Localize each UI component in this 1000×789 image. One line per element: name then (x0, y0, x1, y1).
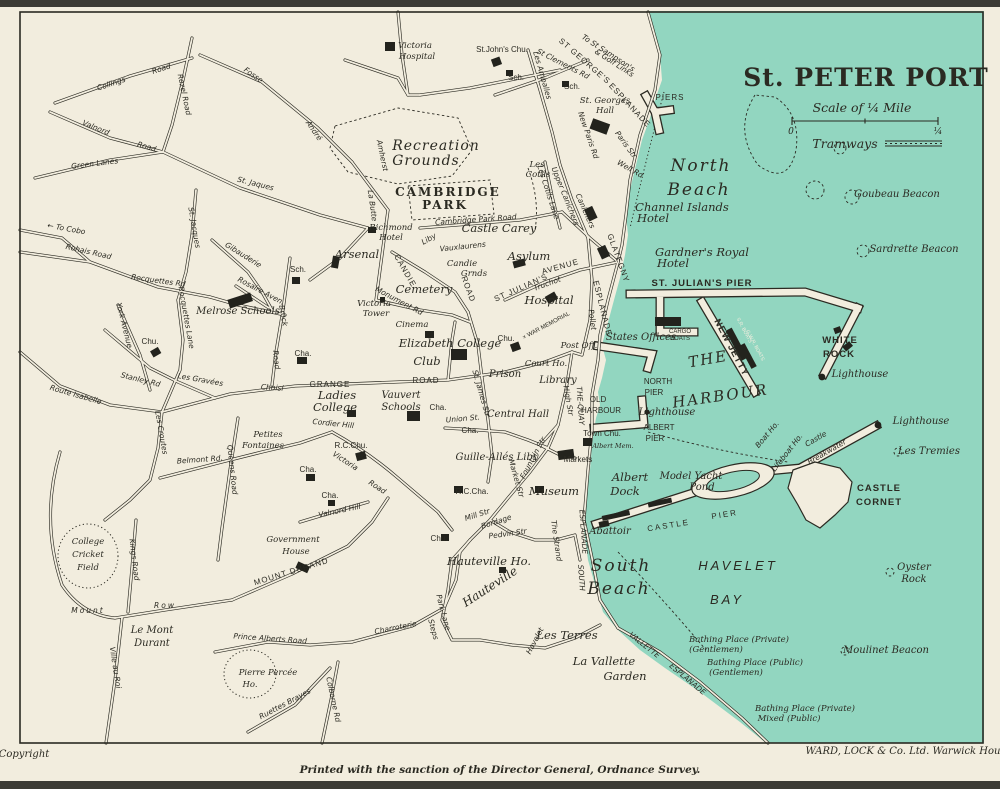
label-library: Library (538, 375, 577, 386)
label-town-chu: Town Chu. (583, 429, 621, 438)
label-piers: PIERS (655, 93, 684, 102)
label-bay: BAY (710, 592, 744, 607)
label-grnds: Grnds (461, 269, 488, 279)
label-castle-carey: Castle Carey (462, 221, 537, 235)
label-st-georges: St. Georges (580, 96, 631, 106)
label-hospital: Hospital (398, 52, 436, 62)
label-pierre-perc-e: Pierre Percée (238, 667, 298, 678)
label-cha: Cha. (322, 491, 339, 500)
label-st-john-s-chu: St.John's Chu. (476, 45, 528, 54)
label-north: NORTH (644, 377, 673, 386)
label-la-vallette: La Vallette (572, 654, 636, 668)
label-central-hall: Central Hall (487, 409, 549, 420)
label-states-offices: States Offices (606, 332, 676, 343)
scale-start: 0 (788, 127, 794, 137)
label-lighthouse: Lighthouse (892, 416, 950, 427)
label-dock: Dock (609, 484, 640, 498)
label-havelet: HAVELET (698, 558, 778, 573)
photo-edge-top (0, 0, 1000, 7)
label-road: ROAD (412, 376, 439, 385)
label-hauteville-ho: Hauteville Ho. (446, 554, 531, 568)
label-rock: Rock (900, 574, 926, 585)
label-lighthouse: Lighthouse (831, 369, 889, 380)
label-bathing-place-private: Bathing Place (Private) (688, 634, 789, 645)
map-title: St. PETER PORT (743, 63, 989, 92)
label-petites: Petites (252, 430, 283, 440)
label-sch: Sch. (508, 73, 524, 82)
label-gentlemen: (Gentlemen) (709, 667, 763, 678)
label-chu: Chu. (431, 534, 448, 543)
label-sardrette-beacon: Sardrette Beacon (869, 244, 958, 255)
label-cinema: Cinema (396, 320, 429, 330)
label-bathing-place-public: Bathing Place (Public) (706, 657, 803, 668)
label-prison: Prison (488, 369, 521, 380)
label-chu: Chu. (498, 334, 515, 343)
label-ho: Ho. (241, 680, 257, 690)
label-beach: Beach (586, 579, 650, 599)
label-hotel: Hotel (656, 256, 689, 270)
label-albert: Albert (611, 470, 649, 484)
label-row: Row (154, 601, 176, 610)
photo-edge-bottom (0, 781, 1000, 789)
tramways-label: Tramways (812, 136, 877, 151)
label-hotel: Hotel (636, 211, 669, 225)
label-le-mont: Le Mont (130, 625, 174, 636)
label-rock: ROCK (823, 349, 855, 360)
label-r-c-cha: R.C.Cha. (456, 487, 489, 496)
label-hall: Hall (595, 106, 614, 116)
label-mixed-public: Mixed (Public) (757, 713, 821, 724)
label-white: WHITE (822, 335, 858, 346)
label-fontaines: Fontaines (241, 441, 285, 451)
white-rock-lighthouse-dot (819, 374, 826, 381)
scale-label: Scale of ¼ Mile (813, 100, 912, 115)
label-pier: PIER (646, 434, 665, 443)
label-choisi: Choisi (261, 382, 285, 393)
label-albert: ALBERT (644, 423, 675, 432)
label-bathing-place-private: Bathing Place (Private) (754, 703, 855, 714)
st-peter-port-map: CollingsRoadValnordRoadRozel RoadFosseAn… (0, 0, 1000, 789)
label-vauvert: Vauvert (381, 390, 421, 401)
label-tower: Tower (363, 309, 390, 319)
label-elizabeth-college: Elizabeth College (398, 336, 502, 350)
label-durant: Durant (133, 638, 171, 649)
label-cha: Cha. (300, 465, 317, 474)
label-les-terres: Les Terres (535, 628, 597, 642)
label-albert-mem: Albert Mem. (591, 442, 633, 450)
label-r-c-chu: R.C.Chu. (335, 441, 368, 450)
label-boats: BOATS (670, 336, 690, 342)
label-oyster: Oyster (897, 562, 932, 573)
label-museum: Museum (528, 484, 579, 498)
label-schools: Schools (381, 402, 420, 413)
label-old: OLD (590, 395, 607, 404)
label-asylum: Asylum (507, 249, 551, 263)
label-cha: Cha. (295, 349, 312, 358)
label-moulinet-beacon: Moulinet Beacon (842, 645, 929, 656)
label-sch: Sch. (564, 82, 580, 91)
label-arsenal: Arsenal (334, 247, 380, 261)
label-hotel: Hotel (378, 233, 403, 243)
label-abattoir: Abattoir (588, 526, 632, 537)
label-cemetery: Cemetery (396, 282, 453, 296)
ordnance-survey-note: Printed with the sanction of the Directo… (299, 764, 701, 776)
label-victoria: Victoria (398, 41, 432, 51)
label-harbour: HARBOUR (581, 406, 621, 415)
label-pier: PIER (645, 388, 664, 397)
label-recreation: Recreation (391, 138, 480, 154)
label-college: College (313, 400, 357, 414)
label-model-yacht: Model Yacht (659, 471, 724, 482)
label-cha: Cha. (430, 403, 447, 412)
label-college: College (72, 537, 105, 547)
label-cha: Cha. (462, 426, 479, 435)
label-cornet: CORNET (856, 497, 902, 508)
label-north: North (669, 156, 731, 176)
label-grounds: Grounds (392, 153, 459, 169)
label-garden: Garden (603, 669, 646, 683)
breakwater-lighthouse-dot (875, 422, 882, 429)
label-richmond: Richmond (368, 223, 413, 233)
label-chu: Chu. (142, 337, 159, 346)
label-gentlemen: (Gentlemen) (689, 644, 743, 655)
scale-end: ¼ (934, 126, 943, 137)
label-castle: CASTLE (857, 483, 901, 494)
label-park: PARK (422, 198, 468, 212)
label-cricket: Cricket (72, 550, 104, 560)
label-court-ho: Court Ho. (525, 359, 567, 369)
label-victoria: Victoria (357, 299, 391, 309)
label-beach: Beach (666, 180, 730, 200)
vintage-map-page: CollingsRoadValnordRoadRozel RoadFosseAn… (0, 0, 1000, 789)
label-south: SOUTH (576, 564, 587, 591)
label-mount: Mount (71, 606, 105, 615)
label-cargo: CARGO (669, 329, 691, 335)
label-candie: Candie (447, 259, 477, 269)
label-house: House (281, 547, 309, 557)
label-field: Field (76, 563, 99, 573)
label-south: South (591, 556, 652, 576)
publisher-imprint: WARD, LOCK & Co. Ltd. Warwick House, Sal… (806, 746, 1000, 757)
label-cambridge: CAMBRIDGE (395, 185, 501, 199)
label-post-off: Post Off. (560, 341, 598, 351)
label-hospital: Hospital (523, 293, 573, 307)
label-les-tremies: Les Tremies (897, 446, 960, 457)
label-government: Government (266, 535, 320, 545)
label-melrose-schools: Melrose Schools (195, 306, 280, 317)
label-markets: Markets (564, 455, 592, 464)
label-goubeau-beacon: Goubeau Beacon (854, 189, 940, 200)
label-st-julian-s-pier: ST. JULIAN'S PIER (651, 278, 752, 289)
label-pond: Pond (688, 482, 714, 493)
label-sch: Sch. (290, 265, 306, 274)
label-club: Club (413, 354, 440, 368)
copyright-note: Copyright (0, 749, 50, 760)
